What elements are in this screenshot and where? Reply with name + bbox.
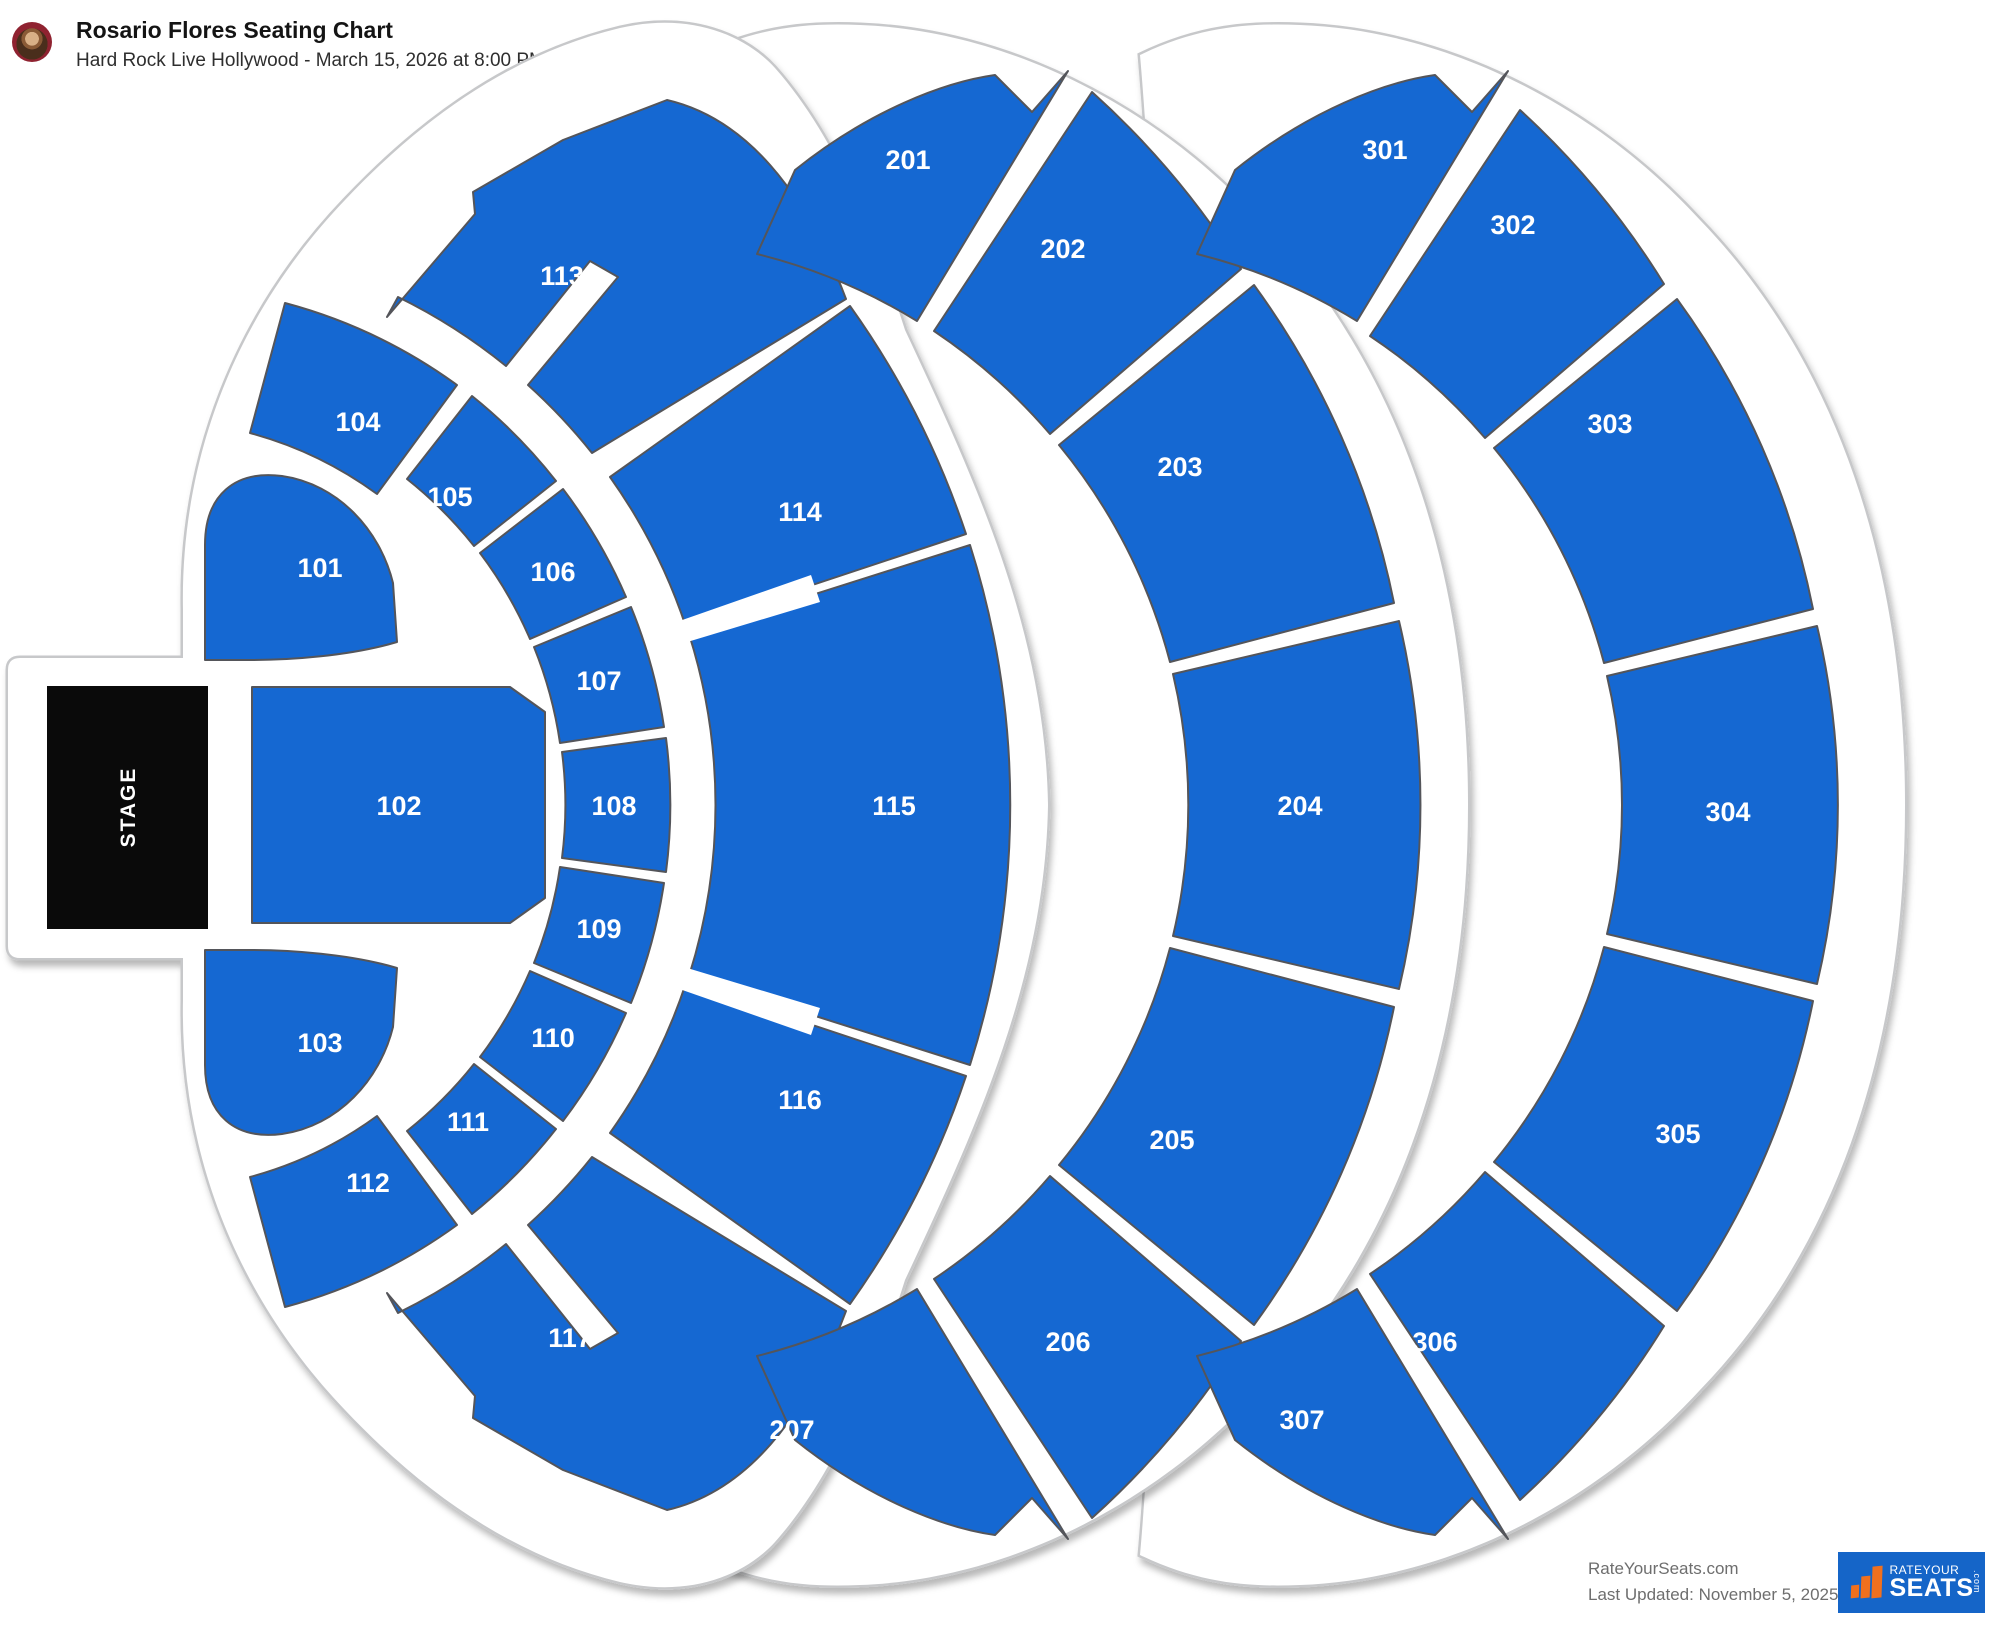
logo-suffix: .com	[1972, 1570, 1982, 1594]
footer-site: RateYourSeats.com	[1588, 1556, 1838, 1582]
section-108[interactable]	[562, 738, 670, 872]
stage-label: STAGE	[117, 767, 140, 848]
rateyourseats-logo[interactable]: RATEYOUR SEATS .com	[1838, 1552, 1985, 1613]
section-304[interactable]	[1607, 626, 1838, 984]
logo-bars-icon	[1850, 1566, 1884, 1600]
section-204[interactable]	[1173, 621, 1420, 989]
footer-updated: Last Updated: November 5, 2025	[1588, 1582, 1838, 1608]
section-102[interactable]	[252, 687, 545, 923]
logo-line2: SEATS	[1890, 1576, 1974, 1601]
footer-credit: RateYourSeats.com Last Updated: November…	[1588, 1556, 1838, 1609]
seating-map: STAGE 1011021031041051061071081091101111…	[0, 0, 2000, 1627]
page: Rosario Flores Seating Chart Hard Rock L…	[0, 0, 2000, 1627]
